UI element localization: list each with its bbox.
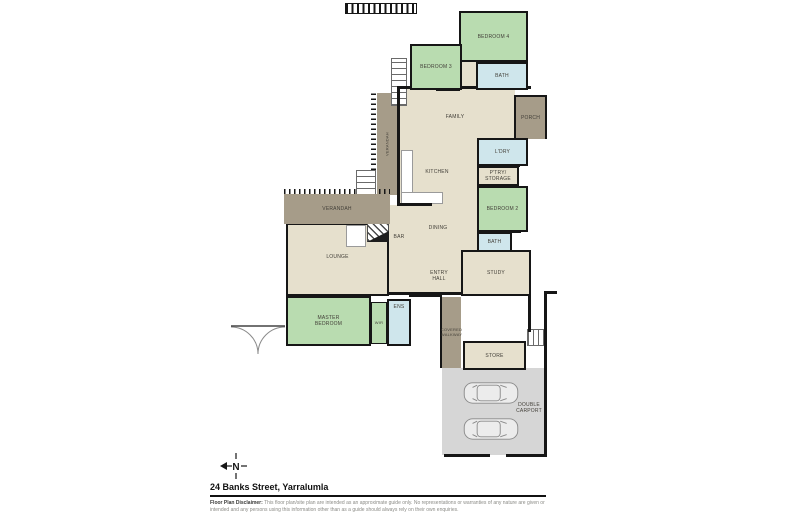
wall xyxy=(544,291,557,294)
room-bath-lower: BATH xyxy=(477,232,512,252)
north-label: N xyxy=(232,462,239,473)
room-pantry: P'TRY/ STORAGE xyxy=(477,166,519,186)
bar-label: BAR xyxy=(388,233,410,241)
lounge-label: LOUNGE xyxy=(310,252,365,262)
room-porch: PORCH xyxy=(514,95,547,139)
store-label: STORE xyxy=(485,353,503,359)
verandah-front-label: VERANDAH xyxy=(322,206,351,212)
room-bath-upper: BATH xyxy=(476,62,528,90)
bedroom2-label: BEDROOM 2 xyxy=(487,206,519,212)
deck-hatch xyxy=(345,3,417,14)
room-study: STUDY xyxy=(461,250,531,296)
room-wir: WIR xyxy=(371,302,387,344)
wall xyxy=(506,454,547,457)
master-bedroom-label: MASTER BEDROOM xyxy=(315,315,342,327)
double-carport-label: DOUBLE CARPORT xyxy=(510,400,548,416)
disclaimer: Floor Plan Disclaimer: This floor plan/s… xyxy=(210,500,550,513)
room-bedroom-3: BEDROOM 3 xyxy=(410,44,462,90)
wall xyxy=(409,294,442,297)
car-icon xyxy=(462,417,520,441)
wall xyxy=(397,203,432,206)
room-bedroom-4: BEDROOM 4 xyxy=(459,11,528,62)
double-door-arc xyxy=(229,325,287,355)
room-master-bedroom: MASTER BEDROOM xyxy=(286,296,371,346)
room-store: STORE xyxy=(463,341,526,370)
entry-hall-label: ENTRY HALL xyxy=(422,270,456,282)
bath-upper-label: BATH xyxy=(495,73,509,79)
wall xyxy=(544,291,547,457)
title-rule xyxy=(210,495,546,497)
page-title: 24 Banks Street, Yarralumla xyxy=(210,482,550,492)
room-ensuite: ENS xyxy=(387,299,411,346)
kitchen-label: KITCHEN xyxy=(412,168,462,176)
disclaimer-label: Floor Plan Disclaimer: xyxy=(210,500,263,506)
bath-lower-label: BATH xyxy=(488,239,502,245)
porch-label: PORCH xyxy=(521,115,540,121)
dining-label: DINING xyxy=(418,224,458,232)
north-arrow-icon: N xyxy=(219,451,251,481)
room-laundry: L'DRY xyxy=(477,138,528,166)
room-covered-walkway: COVERED WALKWAY xyxy=(440,297,461,368)
bar-counter xyxy=(346,225,366,247)
wall xyxy=(528,294,531,332)
study-label: STUDY xyxy=(487,270,505,276)
laundry-label: L'DRY xyxy=(495,149,510,155)
family-label: FAMILY xyxy=(420,113,490,121)
bedroom3-label: BEDROOM 3 xyxy=(420,64,452,70)
covered-walkway-label: COVERED WALKWAY xyxy=(441,328,462,337)
pantry-label: P'TRY/ STORAGE xyxy=(485,170,511,182)
wall xyxy=(444,454,490,457)
wir-label: WIR xyxy=(375,321,383,326)
room-bedroom-2: BEDROOM 2 xyxy=(477,186,528,232)
stairs xyxy=(356,170,376,196)
bedroom4-label: BEDROOM 4 xyxy=(478,34,510,40)
floor-plan-page: VERANDAH VERANDAH PORCH COVERED WALKWAY … xyxy=(0,0,790,527)
room-verandah-front: VERANDAH xyxy=(284,194,390,224)
verandah-side-label: VERANDAH xyxy=(377,93,398,195)
ensuite-label: ENS xyxy=(394,304,405,310)
